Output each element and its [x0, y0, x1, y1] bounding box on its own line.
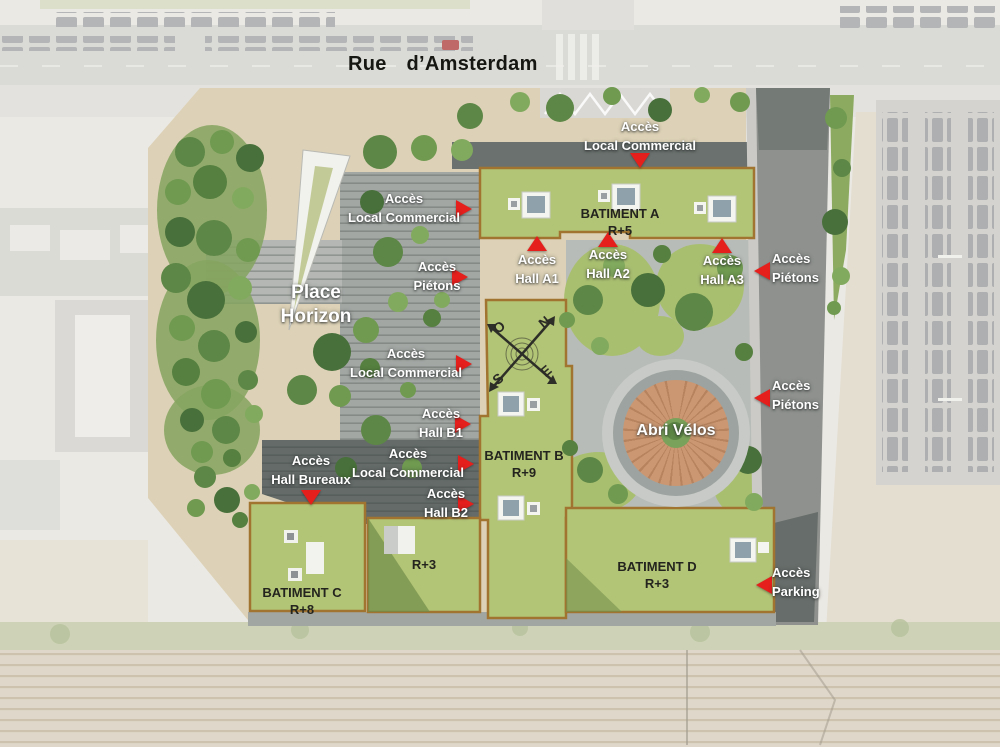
bike-shelter-label: Abri Vélos [636, 419, 715, 442]
access-line1: Accès [772, 564, 820, 583]
access-label-right-pietons-1: Accès Piétons [772, 250, 819, 288]
access-line2: Hall A1 [515, 270, 559, 289]
access-line1: Accès [772, 250, 819, 269]
access-label-left-pietons: Accès Piétons [414, 258, 461, 296]
access-line2: Hall Bureaux [271, 471, 350, 490]
place-line2: Horizon [281, 305, 352, 329]
access-line2: Hall B2 [424, 504, 468, 523]
access-label-right-pietons-2: Accès Piétons [772, 377, 819, 415]
access-label-mid-local-commercial: Accès Local Commercial [350, 345, 462, 383]
context-parking-lot [876, 100, 1000, 485]
building-label-d: BATIMENT D R+3 [617, 559, 696, 593]
access-label-hall-a3: Accès Hall A3 [700, 252, 744, 290]
access-line2: Hall A3 [700, 271, 744, 290]
building-d-name: BATIMENT D [617, 559, 696, 576]
access-line2: Local Commercial [348, 209, 460, 228]
access-line1: Accès [586, 246, 630, 265]
access-label-parking: Accès Parking [772, 564, 820, 602]
building-label-b: BATIMENT B R+9 [484, 448, 563, 482]
access-line2: Piétons [414, 277, 461, 296]
building-a-name: BATIMENT A [581, 206, 660, 223]
access-line2: Local Commercial [352, 464, 464, 483]
access-line2: Local Commercial [350, 364, 462, 383]
access-arrow-right-pietons-1 [754, 262, 770, 280]
access-line1: Accès [700, 252, 744, 271]
access-line1: Accès [414, 258, 461, 277]
access-line1: Accès [424, 485, 468, 504]
access-arrow-hall-bureaux [301, 490, 321, 505]
access-line1: Accès [515, 251, 559, 270]
street-name-label: Rue d’Amsterdam [348, 50, 538, 79]
access-arrow-parking [756, 576, 772, 594]
access-line1: Accès [348, 190, 460, 209]
access-label-top-local-commercial: Accès Local Commercial [584, 118, 696, 156]
building-label-c: BATIMENT C R+8 [262, 585, 341, 619]
access-arrow-hall-a1 [527, 236, 547, 251]
access-line1: Accès [350, 345, 462, 364]
access-arrow-right-pietons-2 [754, 389, 770, 407]
building-d-floors: R+3 [617, 576, 696, 593]
building-b-name: BATIMENT B [484, 448, 563, 465]
access-line1: Accès [271, 452, 350, 471]
building-c-floors: R+8 [262, 602, 341, 619]
access-label-low-local-commercial: Accès Local Commercial [352, 445, 464, 483]
building-annex-floors: R+3 [412, 557, 436, 574]
access-label-hall-bureaux: Accès Hall Bureaux [271, 452, 350, 490]
access-line1: Accès [584, 118, 696, 137]
access-label-left-local-commercial: Accès Local Commercial [348, 190, 460, 228]
place-line1: Place [281, 281, 352, 305]
access-line2: Local Commercial [584, 137, 696, 156]
access-line2: Hall A2 [586, 265, 630, 284]
access-label-hall-a1: Accès Hall A1 [515, 251, 559, 289]
place-horizon-label: Place Horizon [281, 281, 352, 329]
access-arrow-hall-a3 [712, 238, 732, 253]
railway-tracks [0, 619, 1000, 747]
compass-n: N [535, 313, 553, 332]
building-c-name: BATIMENT C [262, 585, 341, 602]
access-label-hall-a2: Accès Hall A2 [586, 246, 630, 284]
tree-cluster-left [156, 125, 267, 475]
access-label-hall-b2: Accès Hall B2 [424, 485, 468, 523]
building-label-a: BATIMENT A R+5 [581, 206, 660, 240]
access-line2: Piétons [772, 396, 819, 415]
access-line1: Accès [419, 405, 463, 424]
compass-o: O [490, 317, 509, 336]
access-line2: Piétons [772, 269, 819, 288]
access-line2: Parking [772, 583, 820, 602]
access-line2: Hall B1 [419, 424, 463, 443]
site-plan-map: Abri Vélos N O S E Rue d’Amsterdam Place… [0, 0, 1000, 747]
building-b-floors: R+9 [484, 465, 563, 482]
building-a-floors: R+5 [581, 223, 660, 240]
access-line1: Accès [352, 445, 464, 464]
access-label-hall-b1: Accès Hall B1 [419, 405, 463, 443]
building-label-annex: R+3 [412, 557, 436, 574]
red-car [442, 40, 459, 50]
access-line1: Accès [772, 377, 819, 396]
